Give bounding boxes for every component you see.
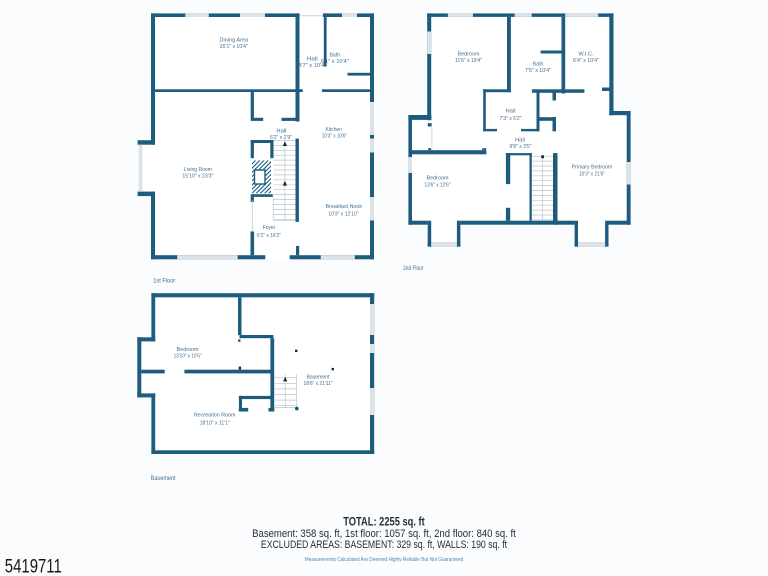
svg-text:10'3" x 10'6": 10'3" x 10'6" <box>322 134 347 140</box>
svg-text:5419711: 5419711 <box>5 556 62 576</box>
svg-text:Bedroom: Bedroom <box>427 176 449 182</box>
svg-text:Hall: Hall <box>515 138 525 144</box>
svg-text:Primary Bedroom: Primary Bedroom <box>572 165 613 171</box>
svg-text:Bedroom: Bedroom <box>177 347 199 353</box>
svg-text:9'8" x 3'5": 9'8" x 3'5" <box>510 144 532 150</box>
svg-text:6'2" x 2'9": 6'2" x 2'9" <box>270 135 292 141</box>
svg-text:13'10" x 10'5": 13'10" x 10'5" <box>174 353 202 359</box>
svg-text:Bath: Bath <box>533 62 544 68</box>
svg-text:10'3" x 21'6": 10'3" x 21'6" <box>579 172 605 178</box>
svg-text:Breakfast Nook: Breakfast Nook <box>326 204 363 210</box>
svg-text:Basement: Basement <box>307 374 330 380</box>
svg-text:Bath: Bath <box>329 53 340 59</box>
svg-text:Kitchen: Kitchen <box>326 127 342 133</box>
svg-text:18'6" x 21'11": 18'6" x 21'11" <box>304 381 333 387</box>
svg-text:15'10" x 23'3": 15'10" x 23'3" <box>182 174 213 180</box>
svg-text:Living Room: Living Room <box>184 167 212 173</box>
svg-text:20'1" x 10'4": 20'1" x 10'4" <box>220 44 248 50</box>
svg-text:Hall: Hall <box>276 129 286 135</box>
svg-text:Hall: Hall <box>506 109 516 115</box>
svg-text:10'3" x 12'10": 10'3" x 12'10" <box>328 211 358 217</box>
svg-text:EXCLUDED AREAS: BASEMENT: 329: EXCLUDED AREAS: BASEMENT: 329 sq. ft, WA… <box>261 539 508 551</box>
svg-text:6'1" x 16'2": 6'1" x 16'2" <box>257 233 281 239</box>
svg-text:Bedroom: Bedroom <box>458 52 480 58</box>
svg-text:Recreation Room: Recreation Room <box>194 413 236 419</box>
svg-text:7'5" x 10'4": 7'5" x 10'4" <box>525 68 551 74</box>
svg-text:6'4" x 10'4": 6'4" x 10'4" <box>573 58 599 64</box>
svg-text:13'6" x 12'6": 13'6" x 12'6" <box>425 183 451 189</box>
svg-text:Basement: 358 sq. ft, 1st floo: Basement: 358 sq. ft, 1st floor: 1057 sq… <box>252 528 516 540</box>
svg-text:Measurements Calculated Are De: Measurements Calculated Are Deemed Highl… <box>305 557 463 563</box>
svg-text:1st Floor: 1st Floor <box>153 278 175 285</box>
svg-text:18'10" x 11'1": 18'10" x 11'1" <box>200 420 230 426</box>
svg-text:Dining Area: Dining Area <box>220 38 249 44</box>
svg-text:7'3" x 5'2": 7'3" x 5'2" <box>500 116 522 122</box>
svg-text:Foyer: Foyer <box>263 225 276 231</box>
svg-text:6'1" x 10'4": 6'1" x 10'4" <box>321 59 349 65</box>
svg-text:11'6" x 19'4": 11'6" x 19'4" <box>455 58 482 64</box>
svg-text:Basement: Basement <box>151 475 176 482</box>
svg-text:TOTAL: 2255 sq. ft: TOTAL: 2255 sq. ft <box>343 517 425 529</box>
svg-text:W.I.C.: W.I.C. <box>579 52 594 58</box>
svg-text:Hall: Hall <box>307 57 318 63</box>
svg-text:2nd Floor: 2nd Floor <box>403 265 423 272</box>
